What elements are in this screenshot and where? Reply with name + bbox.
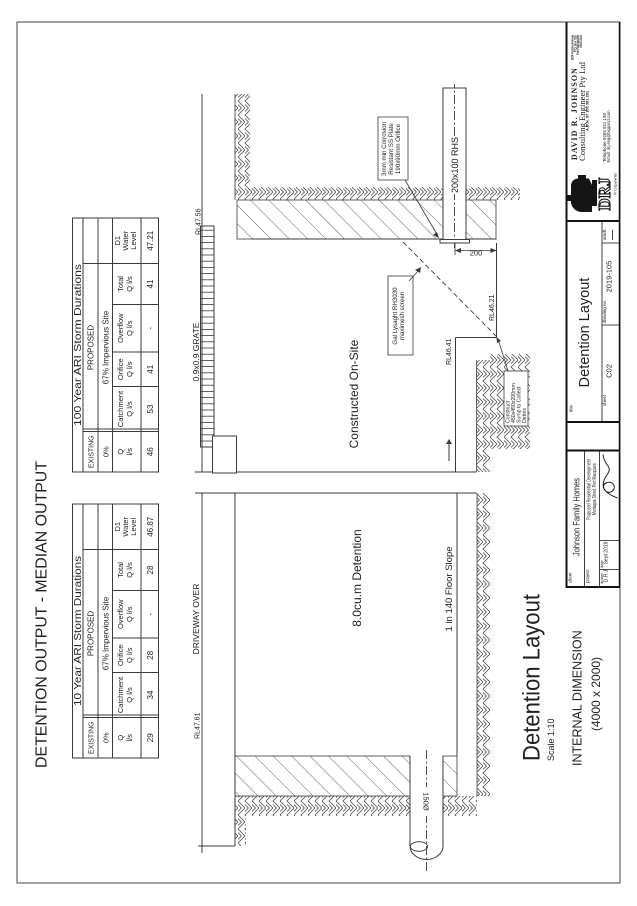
- svg-text:maximesh screen: maximesh screen: [399, 291, 406, 340]
- svg-text:Catchment: Catchment: [116, 390, 125, 427]
- svg-text:0%: 0%: [102, 446, 111, 457]
- svg-text:Level: Level: [129, 231, 138, 249]
- svg-text:EXISTING: EXISTING: [89, 721, 96, 754]
- svg-text:Level: Level: [129, 517, 138, 535]
- svg-text:NSW 2444: NSW 2444: [579, 34, 583, 47]
- svg-text:Sept 2019: Sept 2019: [604, 541, 610, 564]
- svg-text:Q l/s: Q l/s: [125, 401, 134, 417]
- svg-text:DRJ: DRJ: [595, 177, 614, 211]
- svg-text:Q l/s: Q l/s: [125, 276, 134, 292]
- svg-text:1 in 140 Floor Slope: 1 in 140 Floor Slope: [444, 546, 455, 631]
- svg-text:Q l/s: Q l/s: [125, 647, 134, 663]
- svg-text:EXISTING: EXISTING: [89, 435, 96, 468]
- svg-text:drawing no.: drawing no.: [602, 300, 607, 323]
- svg-text:46.87: 46.87: [146, 516, 155, 537]
- svg-text:PROPOSED: PROPOSED: [87, 611, 96, 657]
- svg-text:67% Impervious Site: 67% Impervious Site: [102, 596, 111, 670]
- svg-text:Orifice: Orifice: [116, 358, 125, 380]
- svg-text:10 Year ARI Storm Durations: 10 Year ARI Storm Durations: [73, 556, 84, 706]
- svg-text:DRIVEWAY OVER: DRIVEWAY OVER: [191, 584, 201, 655]
- svg-text:D.R.J: D.R.J: [604, 569, 610, 582]
- svg-text:RL47.61: RL47.61: [195, 712, 202, 739]
- svg-text:Q l/s: Q l/s: [125, 361, 134, 377]
- svg-text:46: 46: [146, 447, 155, 456]
- svg-text:DETENTION OUTPUT - MEDIAN OUTP: DETENTION OUTPUT - MEDIAN OUTPUT: [34, 461, 51, 768]
- svg-text:RL46.41: RL46.41: [446, 338, 453, 365]
- svg-text:Q l/s: Q l/s: [125, 562, 134, 578]
- svg-text:41: 41: [146, 364, 155, 373]
- svg-text:Scale 1:10: Scale 1:10: [546, 718, 556, 761]
- svg-text:Montague Street, Port Macquari: Montague Street, Port Macquarie: [592, 463, 598, 515]
- svg-text:-: -: [146, 613, 155, 616]
- svg-text:28: 28: [146, 565, 155, 574]
- svg-text:RL47.56: RL47.56: [196, 208, 203, 235]
- svg-text:190x90mm Orifice: 190x90mm Orifice: [395, 123, 402, 174]
- svg-text:Q l/s: Q l/s: [125, 320, 134, 336]
- svg-text:200: 200: [470, 249, 483, 258]
- svg-text:Q: Q: [116, 735, 125, 741]
- svg-text:A.B.N. 87 102 381 281: A.B.N. 87 102 381 281: [585, 90, 590, 131]
- svg-text:29: 29: [146, 733, 155, 742]
- svg-text:Debris: Debris: [522, 408, 528, 423]
- svg-text:RL46.21: RL46.21: [489, 294, 496, 321]
- svg-text:0%: 0%: [102, 732, 111, 743]
- svg-text:150Ø: 150Ø: [422, 792, 431, 811]
- svg-text:53: 53: [146, 404, 155, 413]
- svg-text:100 Year ARI Storm Durations: 100 Year ARI Storm Durations: [73, 264, 84, 426]
- svg-text:client: client: [568, 572, 573, 583]
- svg-text:Q l/s: Q l/s: [125, 606, 134, 622]
- svg-text:47.21: 47.21: [146, 230, 155, 251]
- svg-text:Q: Q: [116, 449, 125, 455]
- svg-text:Constructed On-Site: Constructed On-Site: [347, 339, 361, 448]
- svg-text:INTERNAL DIMENSION: INTERNAL DIMENSION: [571, 630, 585, 766]
- svg-text:Resistant SS Plate: Resistant SS Plate: [388, 123, 395, 175]
- svg-text:l/s: l/s: [125, 448, 134, 456]
- svg-text:C02: C02: [605, 364, 614, 378]
- svg-text:2019-105: 2019-105: [605, 261, 614, 293]
- svg-text:amdt.: amdt.: [602, 229, 607, 240]
- svg-text:l/s: l/s: [125, 734, 134, 742]
- svg-text:Johnson Family Homes: Johnson Family Homes: [572, 478, 583, 556]
- svg-text:sheet: sheet: [602, 394, 607, 406]
- svg-text:Total: Total: [116, 562, 125, 578]
- svg-text:Orifice: Orifice: [116, 644, 125, 666]
- svg-text:28: 28: [146, 650, 155, 659]
- svg-text:8.0cu.m Detention: 8.0cu.m Detention: [350, 529, 364, 626]
- svg-text:Overflow: Overflow: [116, 313, 125, 343]
- svg-text:(4000 x 2000): (4000 x 2000): [589, 657, 603, 731]
- svg-text:-: -: [146, 327, 155, 330]
- svg-text:Detention Layout: Detention Layout: [577, 278, 593, 388]
- svg-text:Overflow: Overflow: [116, 599, 125, 629]
- svg-text:Q l/s: Q l/s: [125, 687, 134, 703]
- svg-text:© Copywrite: © Copywrite: [613, 172, 618, 195]
- svg-text:67% Impervious Site: 67% Impervious Site: [102, 310, 111, 384]
- svg-text:0.9x0.9 GRATE: 0.9x0.9 GRATE: [191, 322, 201, 381]
- svg-text:200x100 RHS: 200x100 RHS: [450, 137, 460, 193]
- svg-text:Total: Total: [116, 276, 125, 292]
- svg-text:title: title: [569, 405, 574, 413]
- svg-text:project: project: [585, 569, 590, 583]
- svg-text:Detention Layout: Detention Layout: [519, 594, 546, 761]
- svg-text:34: 34: [146, 690, 155, 699]
- svg-text:41: 41: [146, 279, 155, 288]
- svg-text:Gal Lysaght RH3030: Gal Lysaght RH3030: [392, 287, 399, 345]
- svg-text:PROPOSED: PROPOSED: [87, 325, 96, 371]
- svg-text:3mm min Corrosion: 3mm min Corrosion: [381, 121, 388, 176]
- svg-text:Email: drj.eng@bigpond.com: Email: drj.eng@bigpond.com: [606, 110, 611, 162]
- svg-text:Catchment: Catchment: [116, 676, 125, 713]
